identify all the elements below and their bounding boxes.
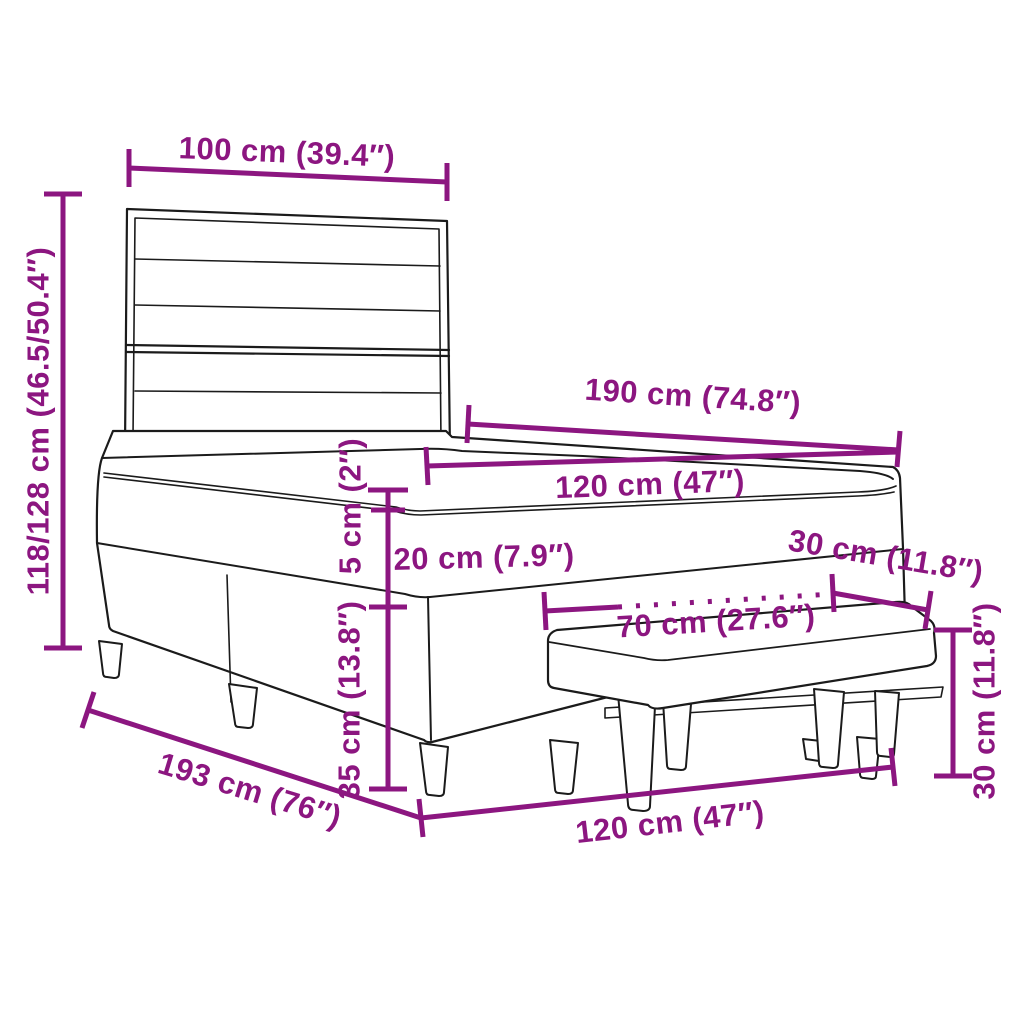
bed-illustration xyxy=(97,209,905,796)
dimension-diagram: 100 cm (39.4″) 118/128 cm (46.5/50.4″) 1… xyxy=(0,0,1024,1024)
dim-bench-height-label: 30 cm (11.8″) xyxy=(969,602,1000,799)
dim-base-height-label: 35 cm (13.8″) xyxy=(334,601,365,800)
dim-total-height-label: 118/128 cm (46.5/50.4″) xyxy=(23,247,54,596)
bed-body xyxy=(97,431,905,742)
diagram-canvas xyxy=(0,0,1024,1024)
dim-topper-height-label: 5 cm (2″) xyxy=(335,438,366,575)
dim-bed-width-top-label: 120 cm (47″) xyxy=(555,465,746,503)
dim-headboard-width-label: 100 cm (39.4″) xyxy=(178,132,396,172)
dim-mattress-height-label: 20 cm (7.9″) xyxy=(393,539,575,575)
headboard xyxy=(125,209,450,451)
